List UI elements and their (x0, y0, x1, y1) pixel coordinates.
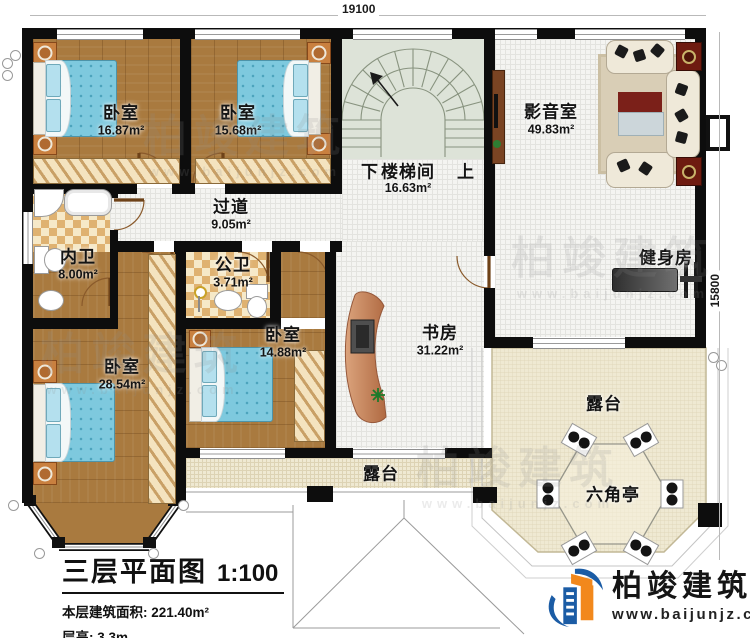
room-label-terrace-south: 露台 (363, 460, 399, 485)
window-bedroom-4 (200, 449, 285, 459)
wall-bath1-south (22, 318, 118, 329)
window-stairwell (353, 29, 452, 40)
media-rug (618, 92, 662, 112)
room-label-private-bath: 内卫 8.00m² (58, 243, 98, 282)
gym-rack-crossbar (680, 276, 702, 282)
wall-corridor-s1 (118, 241, 154, 252)
side-table (676, 157, 702, 186)
side-table (676, 42, 702, 71)
tv-icon (494, 94, 498, 128)
plan-title-row: 三层平面图1:100 (62, 550, 284, 594)
wall-bath2-east (270, 252, 281, 318)
room-label-hex-pavilion: 六角亭 (586, 481, 640, 506)
wardrobe (33, 158, 180, 184)
pillow (46, 424, 61, 458)
pillow (46, 388, 61, 422)
study-desk (345, 292, 386, 423)
pavilion-seat (661, 480, 683, 508)
east-wall-niche (706, 115, 730, 151)
lamp-icon (38, 466, 53, 481)
wall-bed3-east (175, 252, 186, 503)
room-area: 28.54m² (99, 378, 146, 392)
lamp-icon (38, 137, 53, 152)
wall-bed4-south-2 (285, 448, 353, 458)
lamp-icon (682, 50, 696, 64)
lamp-icon (38, 46, 53, 61)
company-website: www.baijunjz.com (612, 606, 750, 623)
wall-bed4-south-1 (186, 448, 200, 458)
room-label-bedroom-3: 卧室 28.54m² (99, 353, 146, 392)
room-label-stairwell: 楼梯间 (381, 158, 435, 183)
wall-bed2-stair (331, 39, 342, 183)
floor-area-value: 221.40m² (151, 605, 209, 620)
room-name: 书房 (417, 319, 464, 344)
corner-scroll-icon (34, 548, 45, 559)
wall-gym-south-2 (625, 337, 706, 348)
bathtub (64, 189, 112, 216)
room-name: 公卫 (213, 251, 253, 276)
company-logo-icon (542, 566, 604, 628)
window-media-1 (495, 29, 537, 40)
room-area: 16.87m² (98, 124, 145, 138)
company-logo: 柏竣建筑 www.baijunjz.com (542, 566, 750, 628)
room-name: 影音室 (524, 98, 578, 123)
glass-table (618, 112, 664, 136)
room-name: 卧室 (260, 321, 307, 346)
wall-corridor-s5 (330, 241, 342, 252)
pillow (293, 64, 308, 97)
stair-down-label: 下 (361, 158, 379, 183)
plan-title: 三层平面图 (62, 557, 207, 587)
room-label-bedroom-1: 卧室 16.87m² (98, 99, 145, 138)
room-label-bedroom-2: 卧室 15.68m² (215, 99, 262, 138)
room-label-public-bath: 公卫 3.71m² (213, 251, 253, 290)
mop-handle (198, 296, 200, 312)
desk-plant (371, 388, 385, 402)
plan-scale: 1:100 (217, 560, 278, 587)
nightstand (189, 330, 211, 348)
room-name: 露台 (586, 390, 622, 415)
room-name: 露台 (363, 460, 399, 485)
room-label-bedroom-4: 卧室 14.88m² (260, 321, 307, 360)
company-name: 柏竣建筑 (612, 572, 750, 602)
wardrobe (148, 254, 176, 504)
title-block: 三层平面图1:100 本层建筑面积: 221.40m² 层高: 3.3m (62, 550, 284, 638)
corner-scroll-icon (178, 500, 189, 511)
room-name: 卧室 (98, 99, 145, 124)
wall-corridor-s4 (272, 241, 300, 252)
room-name: 卧室 (99, 353, 146, 378)
nightstand (33, 360, 57, 383)
corner-scroll-icon (8, 500, 19, 511)
terrace-pillar-2 (473, 487, 497, 503)
staircase (342, 49, 484, 157)
pavilion-seat (537, 480, 559, 508)
room-area: 3.71m² (213, 276, 253, 290)
floor-plan-canvas: 19100 15800 卧室 16.87m² 卧室 15.68m² 下 楼梯间 … (0, 0, 750, 638)
window-bedroom-2 (195, 29, 300, 40)
gym-bench (612, 268, 678, 292)
wardrobe (294, 350, 325, 442)
lamp-icon (312, 46, 327, 61)
room-name: 六角亭 (586, 481, 640, 506)
wardrobe (195, 158, 331, 184)
room-label-corridor: 过道 9.05m² (211, 193, 251, 232)
wall-corridor-s2 (174, 241, 186, 252)
wall-corridor-n2 (172, 183, 195, 194)
wall-bed1-bed2 (180, 39, 191, 183)
nightstand (33, 462, 57, 485)
window-private-bath (23, 212, 33, 264)
floor-area-label: 本层建筑面积: (62, 605, 148, 620)
label-text: 下 (361, 158, 379, 183)
room-label-gym: 健身房 (639, 244, 693, 269)
label-text: 上 (457, 158, 475, 183)
room-name: 内卫 (58, 243, 98, 268)
window-gym-terrace (533, 338, 625, 349)
lamp-icon (312, 137, 327, 152)
room-area: 16.63m² (385, 181, 432, 195)
company-logo-text: 柏竣建筑 www.baijunjz.com (612, 572, 750, 623)
wall-bed4-east (325, 252, 336, 448)
nightstand (307, 133, 331, 155)
corner-scroll-icon (716, 360, 727, 371)
room-area: 8.00m² (58, 268, 98, 282)
room-name: 过道 (211, 193, 251, 218)
window-study (353, 449, 445, 459)
lamp-icon (193, 332, 208, 347)
nightstand (307, 42, 331, 64)
sink (214, 290, 242, 311)
wall-gym-south-1 (484, 337, 533, 348)
floor-area-row: 本层建筑面积: 221.40m² (62, 601, 284, 621)
room-label-study: 书房 31.22m² (417, 319, 464, 358)
wall-bath1-east (110, 230, 118, 320)
pillow (46, 99, 61, 132)
window-media-2 (575, 29, 685, 40)
room-area: 49.83m² (524, 123, 578, 137)
plant-icon (493, 140, 501, 148)
wall-west (22, 28, 33, 503)
room-name: 卧室 (215, 99, 262, 124)
pillow (202, 385, 217, 417)
dimension-right: 15800 (708, 270, 722, 311)
pillow (46, 64, 61, 97)
terrace-pillar-1 (307, 486, 333, 502)
corner-scroll-icon (10, 50, 21, 61)
lamp-icon (38, 364, 53, 379)
room-area: 9.05m² (211, 218, 251, 232)
bed-headboard (307, 62, 321, 135)
toilet (247, 296, 267, 318)
floor-height-value: 3.3m (97, 630, 128, 638)
room-area: 14.88m² (260, 346, 307, 360)
floor-height-label: 层高: (62, 630, 94, 638)
corner-scroll-icon (2, 70, 13, 81)
dimension-top: 19100 (338, 2, 379, 16)
pillow (202, 351, 217, 383)
floor-height-row: 层高: 3.3m (62, 626, 284, 638)
room-name: 健身房 (639, 244, 693, 269)
window-bedroom-1 (57, 29, 143, 40)
room-label-terrace-east: 露台 (586, 390, 622, 415)
pillow (293, 99, 308, 132)
sink (38, 290, 64, 311)
room-label-media-room: 影音室 49.83m² (524, 98, 578, 137)
stairwell-area: 16.63m² (385, 181, 432, 195)
wall-study-south (445, 448, 492, 458)
stair-up-label: 上 (457, 158, 475, 183)
lamp-icon (682, 165, 696, 179)
room-area: 31.22m² (417, 344, 464, 358)
room-area: 15.68m² (215, 124, 262, 138)
floor-drain (194, 286, 207, 299)
room-name: 楼梯间 (381, 158, 435, 183)
